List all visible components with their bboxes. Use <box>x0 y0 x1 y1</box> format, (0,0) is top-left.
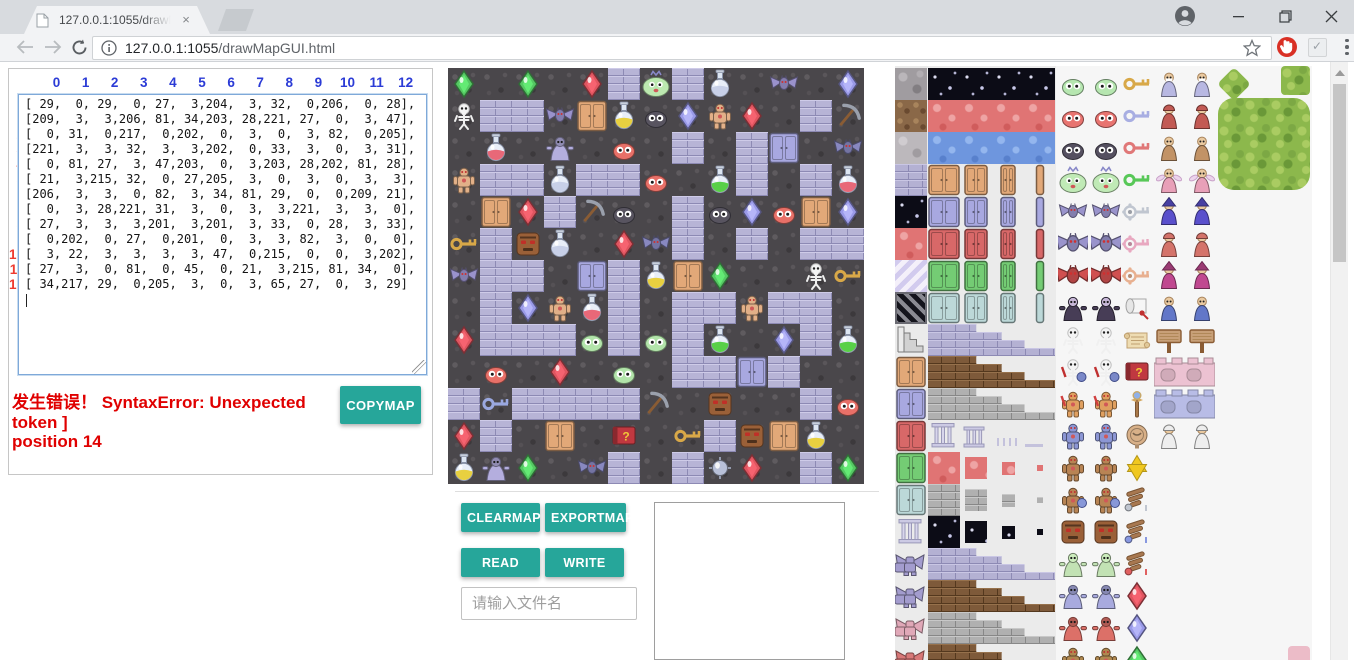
tileset-monster-batL <box>1091 261 1121 291</box>
tileset-gargoyle-icon <box>895 644 927 660</box>
map-tile-wall <box>608 292 640 324</box>
tileset-item-scroll <box>1122 293 1152 323</box>
map-tile-red-gem <box>736 100 768 132</box>
tileset-battlement <box>1154 389 1215 419</box>
map-tile-pickaxe <box>832 100 864 132</box>
new-tab-button[interactable] <box>218 9 254 31</box>
tileset-character-person <box>1154 197 1184 227</box>
map-tile-wall <box>800 388 832 420</box>
tab-title-fade <box>142 6 178 34</box>
browser-titlebar: 127.0.0.1:1055/drawMa × <box>0 0 1354 34</box>
url-host: 127.0.0.1:1055 <box>125 40 218 56</box>
map-tile-yellow-potion <box>800 420 832 452</box>
tileset-character-person <box>1154 261 1184 291</box>
map-tile-red-slime <box>768 196 800 228</box>
tileset-item-staff <box>1122 389 1152 419</box>
tileset-stairs-icon <box>895 324 927 356</box>
map-tile-red-potion <box>576 292 608 324</box>
scrollbar-up-arrow-icon[interactable] <box>1335 70 1345 76</box>
tileset-tile-dirt <box>895 100 927 132</box>
export-output-area[interactable] <box>654 502 845 660</box>
tileset-door-frame <box>992 228 1024 260</box>
map-tile-green-slime <box>640 324 672 356</box>
tileset-monster-bigslime <box>1091 165 1121 195</box>
tileset-character-fairy <box>1154 165 1184 195</box>
map-tile-wall <box>672 292 704 324</box>
tileset-character-fairy <box>1187 165 1217 195</box>
map-tile-green-gem <box>512 452 544 484</box>
map-tile-wall <box>608 324 640 356</box>
map-tile-stone-golem <box>736 420 768 452</box>
tileset-door-frame <box>1024 196 1056 228</box>
map-tile-wall <box>768 292 800 324</box>
tileset-door-frame <box>1024 292 1056 324</box>
map-tile-wall <box>544 388 576 420</box>
tileset-gargoyle-icon <box>895 612 927 644</box>
browser-tab[interactable]: 127.0.0.1:1055/drawMa × <box>24 6 210 34</box>
map-matrix-textarea[interactable]: [ 29, 0, 29, 0, 27, 3,204, 3, 32, 0,206,… <box>18 94 427 375</box>
tileset-door-frame <box>928 196 960 228</box>
tileset-shrink-tile <box>1037 497 1043 503</box>
matrix-col-header: 11 <box>362 75 391 90</box>
tileset-character-person <box>1154 229 1184 259</box>
map-tile-orange-golem <box>448 164 480 196</box>
map-tile-blue-gem <box>832 196 864 228</box>
tileset-monster-zombie <box>1091 549 1121 579</box>
tileset-door-frame <box>992 292 1024 324</box>
matrix-col-header: 4 <box>158 75 187 90</box>
map-tile-red-gem <box>448 420 480 452</box>
tileset-item-wing <box>1122 517 1152 547</box>
map-tile-yellow-key <box>448 228 480 260</box>
tileset-strip-star <box>928 68 1055 100</box>
map-tile-wall <box>800 452 832 484</box>
checkbox-extension-icon[interactable]: ✓ <box>1306 36 1328 58</box>
tileset-door <box>895 420 927 452</box>
map-tile-orange-door <box>544 420 576 452</box>
map-tile-wall <box>480 324 512 356</box>
tileset-character-person <box>1187 69 1217 99</box>
tileset-item-gem <box>1122 581 1152 611</box>
map-tile-blue-gem <box>512 292 544 324</box>
minimize-button[interactable] <box>1216 1 1262 31</box>
tileset-item-wing <box>1122 485 1152 515</box>
map-tile-silver-potion <box>544 228 576 260</box>
tileset-tile-stripes <box>895 260 927 292</box>
tileset-sprite-fragment <box>1288 646 1310 660</box>
tileset-character-person <box>1154 421 1184 451</box>
map-tile-yellow-key <box>832 260 864 292</box>
error-line1: 发生错误！ SyntaxError: Unexpected token ] <box>12 393 352 432</box>
write-button[interactable]: WRITE <box>545 548 624 577</box>
map-tile-wall <box>576 164 608 196</box>
tileset-door-frame <box>992 164 1024 196</box>
map-tile-pickaxe <box>576 196 608 228</box>
tileset-item-book: ? <box>1122 357 1152 387</box>
map-tile-dark-bat <box>576 452 608 484</box>
tileset-item-key <box>1122 133 1152 163</box>
tileset-door-frame <box>1024 228 1056 260</box>
matrix-panel: 0123456789101112 0123456789101112 [ 29, … <box>8 68 433 475</box>
map-tile-wall <box>736 164 768 196</box>
tileset-shrink-tile <box>1037 465 1043 471</box>
close-window-icon[interactable] <box>1308 1 1354 31</box>
map-tile-purple-priest <box>480 452 512 484</box>
map-tile-floor <box>448 132 480 164</box>
map-tile-blue-gem <box>768 324 800 356</box>
map-tile-green-gem <box>512 68 544 100</box>
map-tile-wall <box>544 196 576 228</box>
tileset-pillars-icon <box>928 420 960 452</box>
map-tile-wall <box>480 228 512 260</box>
text-caret <box>26 294 27 307</box>
map-tile-floor <box>736 324 768 356</box>
map-tile-floor <box>768 100 800 132</box>
map-tile-wall <box>512 324 544 356</box>
map-tile-floor <box>832 356 864 388</box>
tileset-character-person <box>1187 133 1217 163</box>
map-tile-orange-golem <box>704 100 736 132</box>
map-tile-orange-door <box>480 196 512 228</box>
tileset-door <box>895 388 927 420</box>
map-tile-orange-door <box>800 196 832 228</box>
tileset-door-frame <box>928 292 960 324</box>
tileset-character-sign <box>1154 325 1184 355</box>
scrollbar-thumb[interactable] <box>1333 84 1346 262</box>
matrix-col-header: 10 <box>333 75 362 90</box>
tileset-item-key <box>1122 165 1152 195</box>
tileset-item-key <box>1122 101 1152 131</box>
back-button[interactable] <box>12 35 38 59</box>
matrix-col-header: 0 <box>42 75 71 90</box>
tileset-tile-stone <box>895 68 927 100</box>
map-tile-black-slime <box>608 196 640 228</box>
map-canvas[interactable]: ? <box>448 68 864 484</box>
tileset-monster-vampire <box>1058 293 1088 323</box>
map-tile-floor <box>672 164 704 196</box>
tileset-pillars-small <box>997 438 1019 446</box>
map-tile-green-potion <box>832 324 864 356</box>
map-tile-black-slime <box>704 196 736 228</box>
tileset-door-frame <box>960 228 992 260</box>
map-tile-blue-gem <box>672 100 704 132</box>
tileset-shrink-tile <box>1002 494 1015 507</box>
map-tile-green-gem <box>832 452 864 484</box>
map-tile-floor <box>640 196 672 228</box>
map-tile-green-potion <box>704 324 736 356</box>
tileset-character-person <box>1154 133 1184 163</box>
map-tile-orange-golem <box>544 292 576 324</box>
tileset-tile-lava <box>895 228 927 260</box>
tileset-monster-bat <box>1058 197 1088 227</box>
restore-button[interactable] <box>1262 1 1308 31</box>
tileset-shrink-tile <box>928 516 960 548</box>
map-tile-purple-door <box>768 132 800 164</box>
map-tile-wall <box>512 100 544 132</box>
tileset-item-star6 <box>1122 453 1152 483</box>
map-tile-wall <box>800 100 832 132</box>
matrix-col-header: 12 <box>391 75 420 90</box>
tileset-character-person <box>1187 101 1217 131</box>
map-tile-wall <box>672 132 704 164</box>
map-tile-wall <box>672 452 704 484</box>
map-tile-black-slime <box>640 100 672 132</box>
map-tile-green-slime <box>608 356 640 388</box>
map-tile-red-potion <box>480 132 512 164</box>
tileset-monster-stoneface <box>1058 517 1088 547</box>
matrix-col-header: 6 <box>217 75 246 90</box>
tileset-character-person <box>1187 293 1217 323</box>
tileset-monster-slime <box>1091 69 1121 99</box>
map-tile-floor <box>768 228 800 260</box>
map-tile-purple-bat <box>544 100 576 132</box>
map-tile-floor <box>768 388 800 420</box>
map-tile-purple-door <box>736 356 768 388</box>
map-tile-purple-priest <box>544 132 576 164</box>
tileset-item-ornkey <box>1122 197 1152 227</box>
map-tile-floor <box>512 132 544 164</box>
map-tile-floor <box>576 420 608 452</box>
map-tile-wall <box>672 324 704 356</box>
browser-toolbar: 127.0.0.1:1055/drawMapGUI.html ✓ <box>0 34 1354 62</box>
tileset-monster-golemS <box>1058 485 1088 515</box>
map-tile-floor <box>704 132 736 164</box>
map-tile-wall <box>800 228 832 260</box>
map-tile-dark-bat <box>832 132 864 164</box>
tileset-character-person <box>1187 229 1217 259</box>
map-tile-red-slime <box>832 388 864 420</box>
map-tile-wall <box>800 324 832 356</box>
map-tile-green-slime <box>576 324 608 356</box>
map-tile-red-gem <box>512 196 544 228</box>
map-tile-wall <box>608 260 640 292</box>
tileset-monster-stoneface <box>1091 517 1121 547</box>
tileset-character-person <box>1154 101 1184 131</box>
error-line2: position 14 <box>12 432 352 452</box>
map-tile-yellow-potion <box>448 452 480 484</box>
tileset-door-frame <box>960 196 992 228</box>
map-tile-floor <box>512 356 544 388</box>
tileset-shrink-tile <box>965 489 987 511</box>
tileset-tile-cobble <box>895 164 927 196</box>
map-tile-orange-door <box>672 260 704 292</box>
map-tile-floor <box>832 420 864 452</box>
tileset-character-person <box>1154 69 1184 99</box>
tileset-palette[interactable]: ? <box>895 66 1312 660</box>
map-tile-wall <box>448 388 480 420</box>
tileset-item-ornkey <box>1122 261 1152 291</box>
matrix-col-header: 8 <box>275 75 304 90</box>
clearmap-button[interactable]: CLEARMAP <box>461 503 540 532</box>
map-tile-floor <box>640 420 672 452</box>
tileset-monster-skeletonS <box>1091 357 1121 387</box>
map-tile-wall <box>704 356 736 388</box>
map-tile-wall <box>480 100 512 132</box>
tileset-character-person <box>1187 197 1217 227</box>
map-tile-stone-golem <box>704 388 736 420</box>
map-tile-blue-key <box>480 388 512 420</box>
map-tile-floor <box>576 132 608 164</box>
map-tile-yellow-potion <box>608 100 640 132</box>
tileset-monster-skeleton <box>1091 325 1121 355</box>
tileset-door-frame <box>1024 164 1056 196</box>
map-tile-wall <box>736 228 768 260</box>
map-tile-purple-bat <box>448 260 480 292</box>
tileset-door-frame <box>928 260 960 292</box>
url-path: /drawMapGUI.html <box>218 40 335 56</box>
tileset-door-frame <box>960 164 992 196</box>
tileset-item-gem <box>1122 645 1152 660</box>
address-bar[interactable]: 127.0.0.1:1055/drawMapGUI.html <box>92 36 1272 60</box>
map-tile-floor <box>736 260 768 292</box>
tileset-monster-golem <box>1091 421 1121 451</box>
tileset-door <box>895 356 927 388</box>
map-tile-purple-bat <box>768 68 800 100</box>
map-tile-stone-golem <box>512 228 544 260</box>
tileset-monster-golem <box>1091 453 1121 483</box>
map-tile-wall <box>704 292 736 324</box>
matrix-col-header: 5 <box>188 75 217 90</box>
tileset-monster-golem <box>1091 645 1121 660</box>
tileset-gargoyle-icon <box>895 548 927 580</box>
tileset-door-frame <box>960 292 992 324</box>
map-tile-orange-door <box>768 420 800 452</box>
map-tile-floor <box>640 292 672 324</box>
tileset-tile-window <box>895 292 927 324</box>
url-text: 127.0.0.1:1055/drawMapGUI.html <box>125 40 335 56</box>
matrix-col-header: 3 <box>129 75 158 90</box>
map-tile-wall <box>672 228 704 260</box>
map-tile-floor <box>480 68 512 100</box>
map-tile-floor <box>800 132 832 164</box>
svg-text:?: ? <box>1135 366 1142 380</box>
map-tile-wall <box>768 356 800 388</box>
map-tile-red-gem <box>576 68 608 100</box>
profile-icon[interactable] <box>1162 1 1208 31</box>
map-tile-floor <box>544 452 576 484</box>
map-tile-pickaxe <box>640 388 672 420</box>
map-tile-skeleton <box>800 260 832 292</box>
map-tile-red-gem <box>608 228 640 260</box>
map-tile-wall <box>544 324 576 356</box>
tileset-monster-slime <box>1058 101 1088 131</box>
page-scrollbar[interactable] <box>1330 62 1348 660</box>
svg-text:?: ? <box>622 430 629 444</box>
matrix-col-header: 1 <box>71 75 100 90</box>
matrix-col-header: 2 <box>100 75 129 90</box>
matrix-col-header: 7 <box>246 75 275 90</box>
map-tile-floor <box>736 68 768 100</box>
tileset-monster-slime <box>1058 133 1088 163</box>
tileset-monster-golem <box>1058 645 1088 660</box>
tileset-character-person <box>1187 421 1217 451</box>
tileset-monster-slime <box>1058 69 1088 99</box>
tileset-monster-warrior <box>1091 389 1121 419</box>
divider-line <box>455 491 879 492</box>
read-button[interactable]: READ <box>461 548 540 577</box>
tileset-item-medal <box>1122 421 1152 451</box>
tileset-door-frame <box>992 260 1024 292</box>
tileset-shrink-tile <box>965 457 987 479</box>
map-tile-silver-potion <box>704 68 736 100</box>
map-tile-floor <box>768 260 800 292</box>
map-tile-floor <box>448 356 480 388</box>
map-tile-wall <box>704 420 736 452</box>
reload-button[interactable] <box>66 35 92 59</box>
tileset-shrink-tile <box>928 484 960 516</box>
tileset-shrink-tile <box>1037 529 1043 535</box>
menu-dots-icon[interactable] <box>1336 36 1354 58</box>
tileset-shrink-tile <box>1002 526 1015 539</box>
tileset-tile-stone2 <box>895 132 927 164</box>
window-controls <box>1162 0 1354 32</box>
map-tile-wall <box>480 164 512 196</box>
tileset-item-key <box>1122 69 1152 99</box>
tileset-character-sign <box>1187 325 1217 355</box>
map-tile-wall <box>832 228 864 260</box>
tileset-monster-bigslime <box>1058 165 1088 195</box>
tileset-monster-golem <box>1058 421 1088 451</box>
map-tile-wall <box>512 260 544 292</box>
copymap-button[interactable]: COPYMAP <box>340 386 421 424</box>
tileset-door-frame <box>992 196 1024 228</box>
map-tile-book: ? <box>608 420 640 452</box>
tileset-monster-priest <box>1058 581 1088 611</box>
info-icon[interactable] <box>101 40 117 56</box>
map-tile-wall <box>576 388 608 420</box>
tileset-shrink-tile <box>928 452 960 484</box>
map-tile-floor <box>640 132 672 164</box>
tileset-tile-star <box>895 196 927 228</box>
check-icon: ✓ <box>1308 38 1327 57</box>
forward-button[interactable] <box>40 35 66 59</box>
tileset-pillars-icon <box>961 424 987 450</box>
map-tile-purple-door <box>576 260 608 292</box>
tileset-monster-batL <box>1058 229 1088 259</box>
tileset-character-person <box>1154 293 1184 323</box>
tileset-monster-slime <box>1091 133 1121 163</box>
map-tile-silver-potion <box>544 164 576 196</box>
tileset-monster-bat <box>1091 197 1121 227</box>
map-tile-floor <box>544 68 576 100</box>
map-tile-silver-orb <box>704 452 736 484</box>
map-tile-floor <box>640 452 672 484</box>
tileset-item-ornkey <box>1122 229 1152 259</box>
tileset-monster-skeleton <box>1058 325 1088 355</box>
tileset-monster-warrior <box>1058 389 1088 419</box>
map-tile-red-slime <box>480 356 512 388</box>
filename-input[interactable] <box>461 587 637 620</box>
map-tile-wall <box>736 132 768 164</box>
map-tile-wall <box>480 292 512 324</box>
tab-close-icon[interactable]: × <box>180 14 192 26</box>
map-tile-floor <box>832 292 864 324</box>
map-tile-blue-gem <box>736 196 768 228</box>
bookmark-star-icon[interactable] <box>1243 39 1261 62</box>
map-tile-floor <box>768 452 800 484</box>
adblock-extension-icon[interactable] <box>1276 36 1298 58</box>
exportmap-button[interactable]: EXPORTMAP <box>545 503 626 532</box>
map-tile-green-potion <box>704 164 736 196</box>
map-tile-floor <box>448 196 480 228</box>
tileset-door-frame <box>928 164 960 196</box>
map-tile-yellow-key <box>672 420 704 452</box>
map-tile-wall <box>800 164 832 196</box>
matrix-text: [ 29, 0, 29, 0, 27, 3,204, 3, 32, 0,206,… <box>19 95 426 292</box>
tileset-monster-priest <box>1091 581 1121 611</box>
tileset-monster-zombie <box>1058 549 1088 579</box>
tileset-monster-batL <box>1058 261 1088 291</box>
